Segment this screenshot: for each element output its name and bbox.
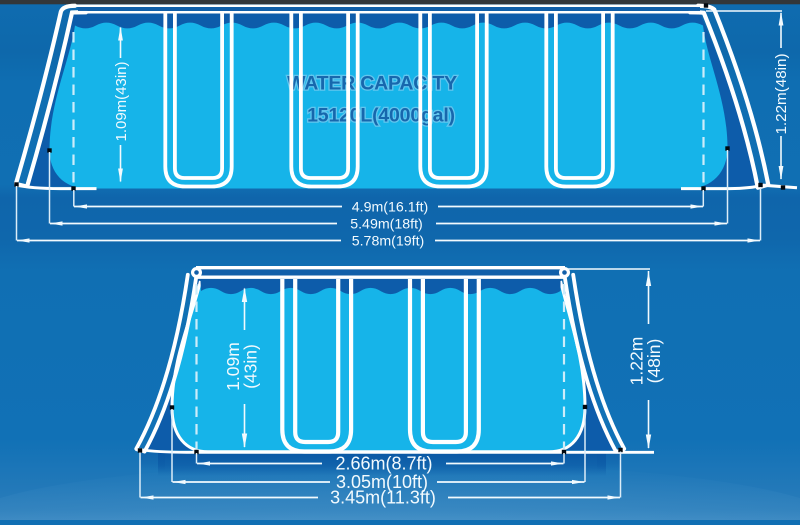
svg-text:15120L(4000gal): 15120L(4000gal) — [307, 105, 455, 127]
svg-text:5.78m(19ft): 5.78m(19ft) — [352, 234, 425, 250]
svg-text:1.22m(48in): 1.22m(48in) — [773, 53, 790, 134]
svg-text:(48in): (48in) — [644, 339, 664, 384]
svg-text:2.66m(8.7ft): 2.66m(8.7ft) — [335, 454, 432, 474]
svg-text:3.45m(11.3ft): 3.45m(11.3ft) — [330, 488, 436, 508]
svg-text:(43in): (43in) — [241, 344, 261, 389]
svg-text:1.09m(43in): 1.09m(43in) — [113, 61, 130, 141]
svg-text:4.9m(16.1ft): 4.9m(16.1ft) — [352, 200, 429, 216]
svg-text:5.49m(18ft): 5.49m(18ft) — [350, 217, 423, 233]
